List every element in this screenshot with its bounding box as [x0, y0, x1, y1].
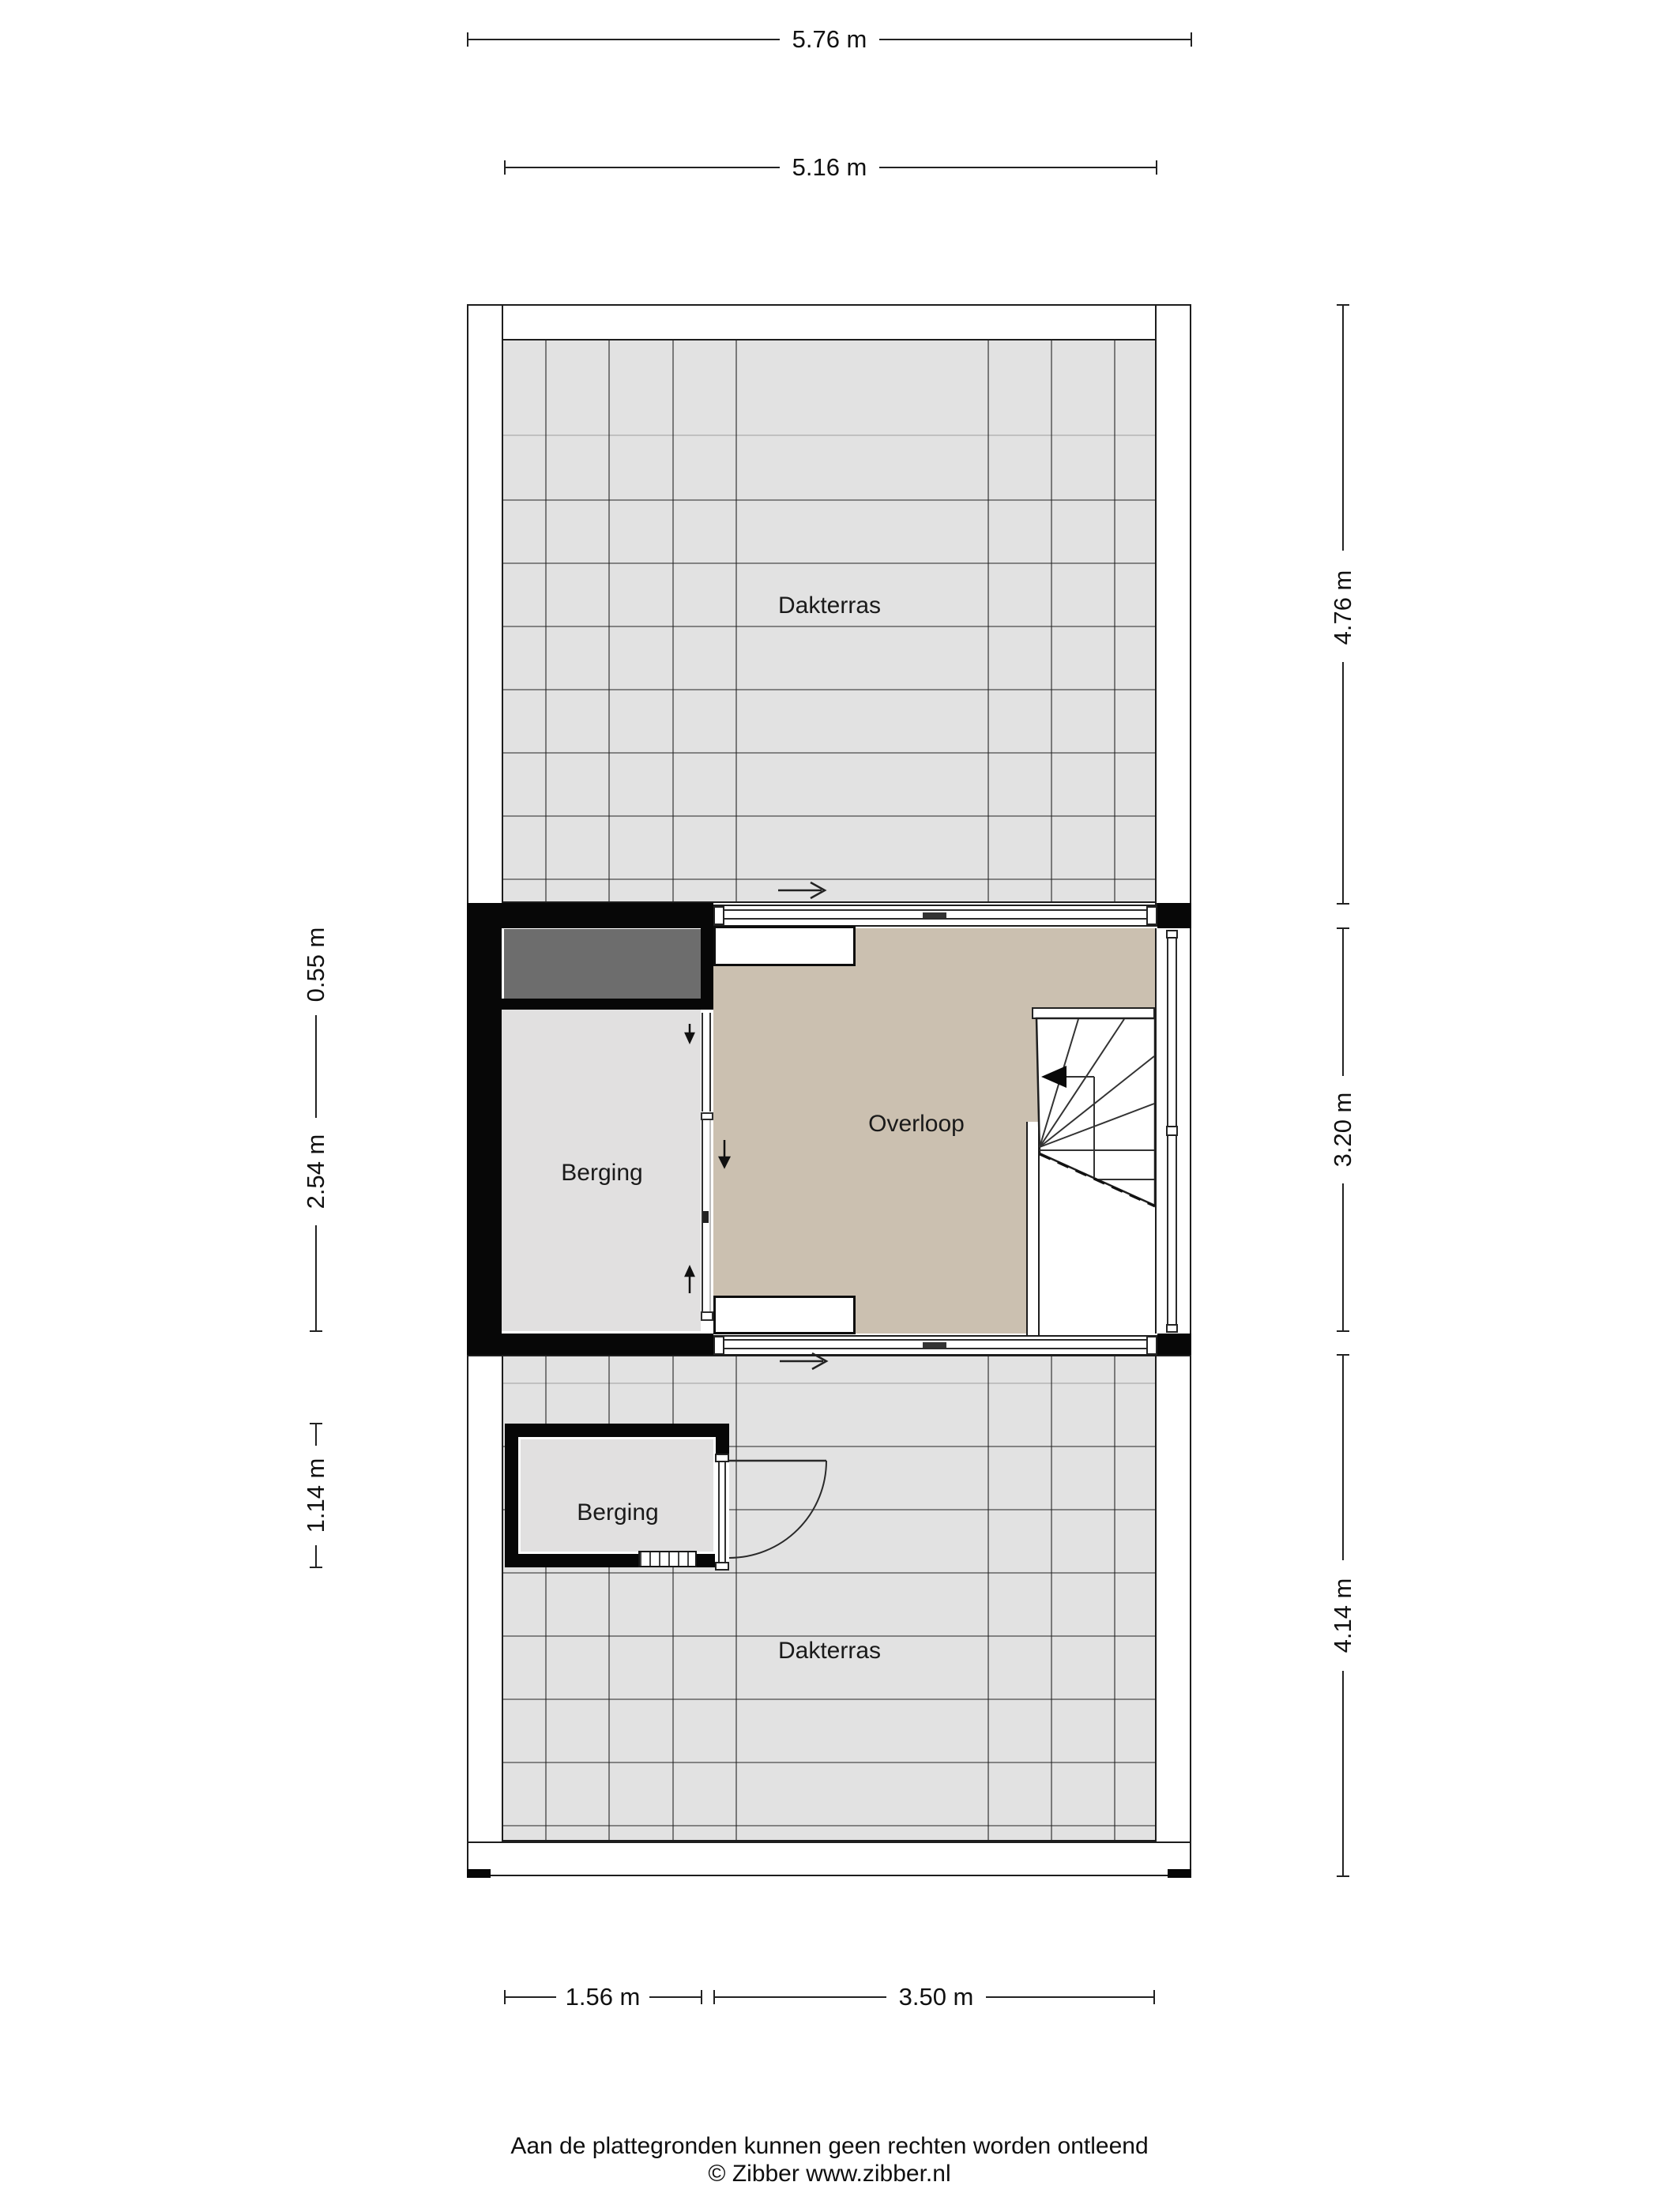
dim-line	[467, 39, 780, 40]
overloop-bottom-window-cap-left	[713, 1336, 724, 1355]
dim-line	[504, 167, 780, 168]
tile-joint-line	[503, 499, 1155, 501]
dim-line	[1342, 1355, 1344, 1560]
tile-joint-line	[987, 1356, 989, 1840]
dakterras-top-label: Dakterras	[778, 592, 881, 619]
tile-joint-line	[503, 1382, 1155, 1384]
tile-joint-line	[503, 1825, 1155, 1826]
tile-joint-line	[672, 340, 674, 901]
stair-side-wall	[1026, 1122, 1040, 1335]
dim-right-1: 3.20 m	[1329, 1086, 1357, 1174]
mid-wall-top	[467, 903, 713, 928]
footer-credit: © Zibber www.zibber.nl	[708, 2161, 950, 2188]
dakterras-top-floor	[503, 340, 1155, 903]
stair-header	[1032, 1007, 1155, 1019]
dim-tick	[1337, 1330, 1349, 1332]
tile-joint-line	[503, 878, 1155, 880]
tile-joint-line	[503, 434, 1155, 436]
tile-joint-line	[735, 1356, 737, 1840]
dim-line	[315, 1545, 317, 1567]
tile-joint-line	[735, 340, 737, 901]
dim-line	[1342, 304, 1344, 551]
top-terrace-wall-left	[467, 304, 503, 905]
tile-joint-line	[503, 1762, 1155, 1763]
tile-joint-line	[503, 1698, 1155, 1700]
bottom-terrace-wall-bottom	[467, 1841, 1191, 1876]
overloop-bottom-window-cap-right	[1146, 1336, 1157, 1355]
mid-right-window-cap-bottom	[1166, 1324, 1178, 1333]
dim-tick	[701, 1990, 702, 2004]
overloop-label: Overloop	[868, 1111, 965, 1138]
dakterras-bottom-label: Dakterras	[778, 1638, 881, 1665]
tile-joint-line	[1114, 340, 1115, 901]
dim-line	[879, 39, 1191, 40]
dim-line	[986, 1996, 1154, 1998]
dim-top-outer: 5.76 m	[788, 25, 872, 54]
dim-left-2: 1.14 m	[302, 1452, 330, 1540]
bottom-right-corner-mark	[1168, 1869, 1191, 1878]
dim-tick	[1153, 1990, 1155, 2004]
tile-joint-line	[1051, 1356, 1052, 1840]
dim-tick	[310, 1330, 322, 1332]
voidbox-wall-right	[701, 903, 713, 1010]
tile-joint-line	[503, 1635, 1155, 1637]
overloop-top-window-cap-right	[1146, 906, 1157, 925]
dim-tick	[1337, 1875, 1349, 1877]
top-terrace-wall-right	[1155, 304, 1191, 905]
berging-bottom-door-opening	[715, 1454, 729, 1571]
dim-right-0: 4.76 m	[1329, 564, 1357, 652]
mid-wall-top-right-corner	[1157, 903, 1191, 928]
mid-right-window-cap-top	[1166, 930, 1178, 939]
tile-joint-line	[1114, 1356, 1115, 1840]
tile-joint-line	[987, 340, 989, 901]
dim-right-2: 4.14 m	[1329, 1572, 1357, 1660]
berging-bottom-window	[638, 1551, 697, 1567]
mid-right-window-cap-middle	[1166, 1126, 1178, 1136]
tile-joint-line	[503, 626, 1155, 627]
top-terrace-wall-top	[467, 304, 1191, 340]
tile-joint-line	[503, 689, 1155, 690]
dim-line	[649, 1996, 702, 1998]
tile-joint-line	[1051, 340, 1052, 901]
tile-joint-line	[503, 1572, 1155, 1574]
dim-line	[713, 1996, 886, 1998]
mid-wall-bottom	[467, 1334, 713, 1355]
dim-top-inner: 5.16 m	[788, 153, 872, 182]
dim-bottom-1: 3.50 m	[894, 1983, 979, 2011]
dim-line	[879, 167, 1157, 168]
mid-wall-bottom-right-corner	[1157, 1334, 1191, 1355]
tile-joint-line	[503, 562, 1155, 564]
dim-line	[1342, 1183, 1344, 1331]
bottom-left-corner-mark	[467, 1869, 491, 1878]
bottom-terrace-wall-left	[467, 1355, 503, 1876]
dim-tick	[1337, 903, 1349, 905]
berging-mid-label: Berging	[561, 1160, 642, 1187]
dim-line	[315, 1424, 317, 1446]
footer-disclaimer: Aan de plattegronden kunnen geen rechten…	[510, 2133, 1148, 2160]
berging-bottom-floor	[518, 1437, 716, 1554]
dim-left-0: 0.55 m	[302, 921, 330, 1009]
mid-wall-left	[467, 903, 502, 1355]
dim-tick	[310, 1567, 322, 1568]
tile-joint-line	[608, 340, 610, 901]
stair-void	[1040, 1153, 1155, 1334]
dim-line	[1342, 662, 1344, 904]
dim-line	[504, 1996, 556, 1998]
floorplan-page: Dakterras Overloop Ber	[0, 0, 1659, 2212]
tile-joint-line	[503, 815, 1155, 817]
roof-void-box	[504, 929, 701, 999]
tile-joint-line	[503, 752, 1155, 754]
dim-line	[1342, 1671, 1344, 1876]
bottom-terrace-wall-right	[1155, 1355, 1191, 1876]
dim-tick	[1191, 32, 1192, 47]
dim-line	[315, 1225, 317, 1331]
berging-bottom-label: Berging	[577, 1499, 658, 1526]
overloop-closet-bottom	[713, 1296, 856, 1334]
dim-tick	[1156, 160, 1157, 175]
berging-mid-sliding-door	[701, 1010, 713, 1334]
dim-left-1: 2.54 m	[302, 1128, 330, 1216]
dim-line	[315, 1015, 317, 1118]
overloop-bottom-window-slider-mark	[923, 1342, 946, 1348]
dim-line	[1342, 928, 1344, 1076]
overloop-top-window-cap-left	[713, 906, 724, 925]
dim-bottom-0: 1.56 m	[561, 1983, 645, 2011]
overloop-top-window-slider-mark	[923, 912, 946, 918]
door-handle-mark	[703, 1211, 709, 1223]
voidbox-wall-bottom	[502, 999, 713, 1010]
overloop-closet-top	[713, 926, 856, 966]
tile-joint-line	[545, 340, 547, 901]
